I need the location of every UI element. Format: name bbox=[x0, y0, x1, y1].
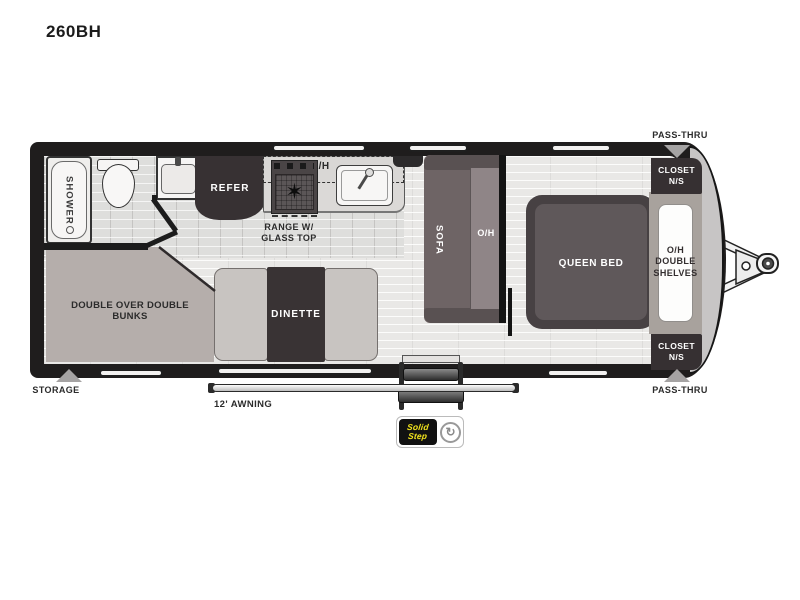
window-icon bbox=[547, 369, 609, 377]
refrigerator: REFER bbox=[195, 156, 265, 220]
bunks-label: DOUBLE OVER DOUBLE BUNKS bbox=[46, 300, 214, 323]
dinette-table: DINETTE bbox=[267, 267, 325, 362]
dinette-bench-left bbox=[214, 268, 268, 361]
range-label: RANGE W/ GLASS TOP bbox=[246, 222, 332, 244]
cabinet-end bbox=[393, 156, 423, 167]
pass-thru-bottom-arrow-icon bbox=[664, 369, 690, 382]
dinette-bench-right bbox=[324, 268, 378, 361]
window-icon bbox=[551, 144, 611, 152]
sofa-overhead-label: O/H bbox=[470, 228, 502, 239]
closet-top: CLOSET N/S bbox=[651, 158, 702, 194]
pass-thru-top-arrow-icon bbox=[664, 145, 690, 158]
entry-threshold bbox=[402, 355, 460, 363]
burner-icon: ✶ bbox=[275, 174, 314, 210]
partition-wall bbox=[499, 155, 506, 323]
storage-arrow-icon bbox=[56, 369, 82, 382]
pass-thru-bottom-label: PASS-THRU bbox=[644, 385, 716, 396]
bathroom-faucet-icon bbox=[175, 157, 181, 166]
window-icon bbox=[99, 369, 163, 377]
awning-label: 12' AWNING bbox=[214, 399, 294, 410]
floorplan-page: 260BH DOUBLE OVER DOUBLE BUNKS SHOWER RE… bbox=[0, 0, 800, 600]
entry-step bbox=[403, 368, 459, 381]
shower-label: SHOWER bbox=[46, 160, 92, 240]
bathroom-sink-basin bbox=[161, 164, 196, 194]
solid-step-badge: Solid Step ↻ bbox=[396, 416, 464, 448]
sliding-door bbox=[508, 288, 512, 336]
storage-label: STORAGE bbox=[20, 385, 92, 396]
window-icon bbox=[272, 144, 366, 152]
kitchen-faucet-base bbox=[365, 168, 374, 177]
sofa-label: SOFA bbox=[430, 205, 448, 275]
awning-bar bbox=[212, 384, 516, 392]
range-knobs-icon bbox=[274, 163, 314, 169]
lci-logo-icon: ↻ bbox=[440, 422, 461, 443]
window-icon bbox=[217, 367, 373, 375]
closet-bottom: CLOSET N/S bbox=[651, 334, 702, 370]
shelves-label: O/H DOUBLE SHELVES bbox=[646, 245, 705, 279]
range-vent bbox=[272, 215, 317, 217]
page-title: 260BH bbox=[46, 22, 101, 42]
solid-step-logo: Solid Step bbox=[399, 419, 437, 445]
sofa-arm-bottom bbox=[424, 308, 505, 323]
window-icon bbox=[408, 144, 468, 152]
pass-thru-top-label: PASS-THRU bbox=[644, 130, 716, 141]
queen-bed-label: QUEEN BED bbox=[526, 258, 656, 270]
